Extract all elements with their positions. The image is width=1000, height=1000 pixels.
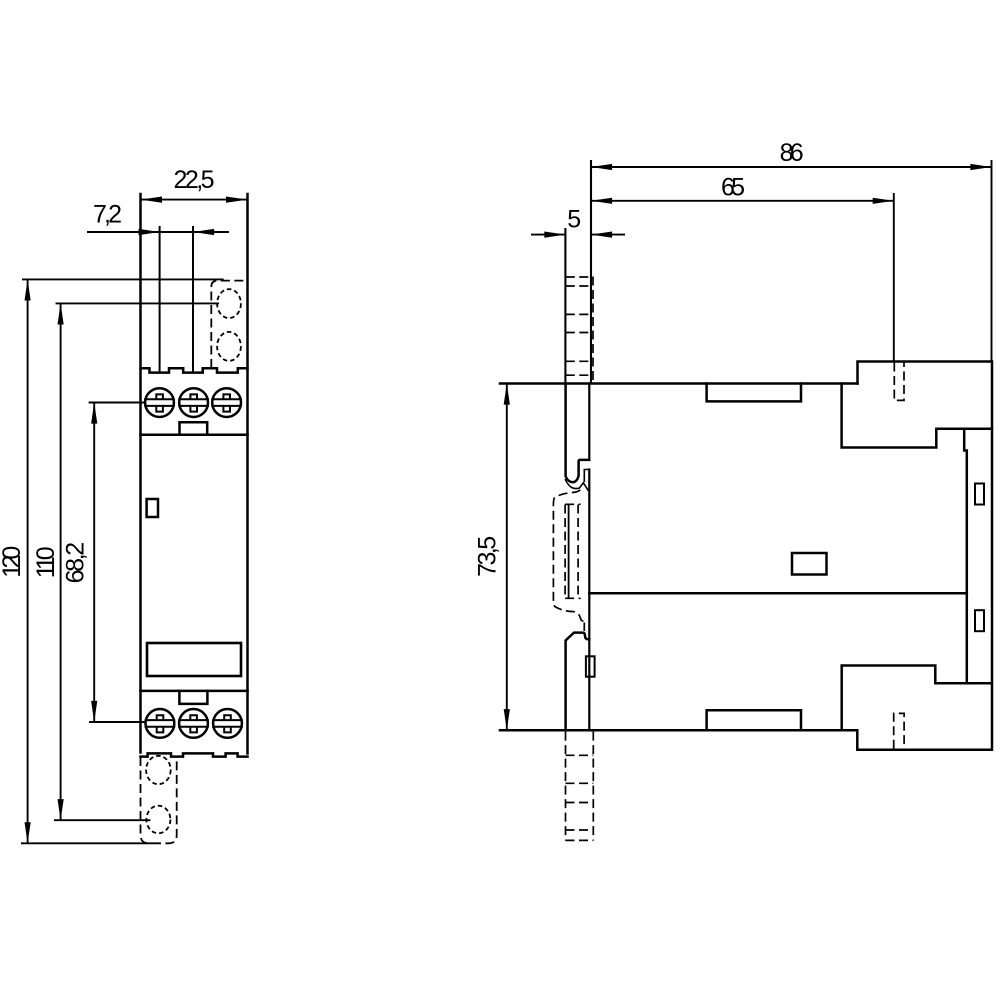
svg-text:65: 65 <box>721 174 745 202</box>
svg-text:120: 120 <box>0 546 26 578</box>
svg-text:7,2: 7,2 <box>93 201 122 229</box>
svg-text:86: 86 <box>780 139 804 167</box>
svg-text:73,5: 73,5 <box>474 536 502 577</box>
svg-text:68,2: 68,2 <box>62 542 90 584</box>
svg-text:22,5: 22,5 <box>174 166 215 194</box>
svg-text:5: 5 <box>567 206 581 234</box>
svg-text:110: 110 <box>32 546 60 578</box>
